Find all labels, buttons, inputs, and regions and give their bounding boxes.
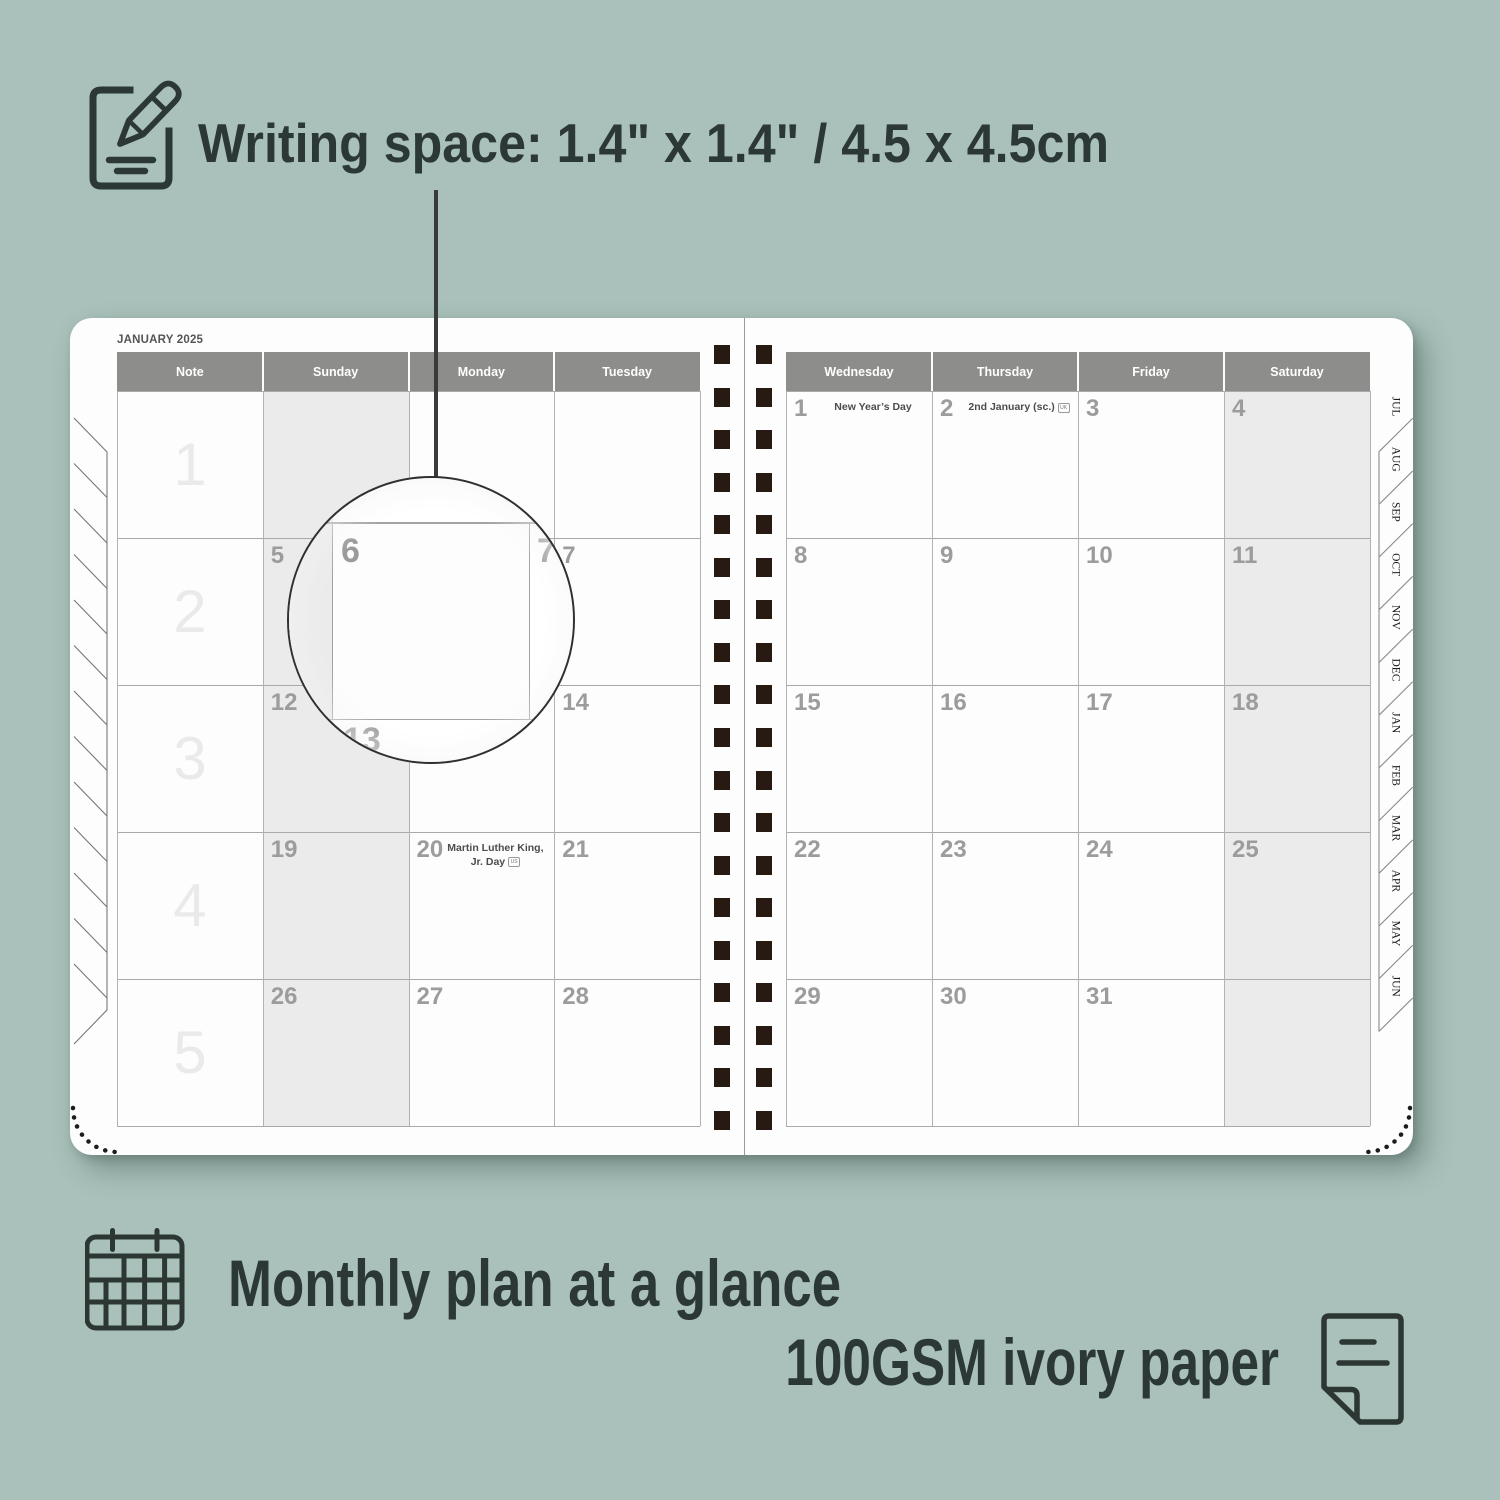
- svg-text:JUL: JUL: [1390, 397, 1402, 417]
- svg-text:AUG: AUG: [1390, 447, 1402, 472]
- svg-text:APR: APR: [1390, 870, 1402, 893]
- svg-text:JAN: JAN: [1390, 712, 1402, 734]
- svg-text:MAY: MAY: [1390, 921, 1402, 947]
- svg-text:JUN: JUN: [1390, 976, 1402, 998]
- svg-text:NOV: NOV: [1390, 605, 1402, 631]
- svg-text:DEC: DEC: [1390, 659, 1402, 682]
- svg-text:FEB: FEB: [1390, 765, 1402, 786]
- svg-text:OCT: OCT: [1390, 553, 1402, 576]
- svg-text:SEP: SEP: [1390, 502, 1402, 522]
- svg-text:MAR: MAR: [1390, 815, 1402, 842]
